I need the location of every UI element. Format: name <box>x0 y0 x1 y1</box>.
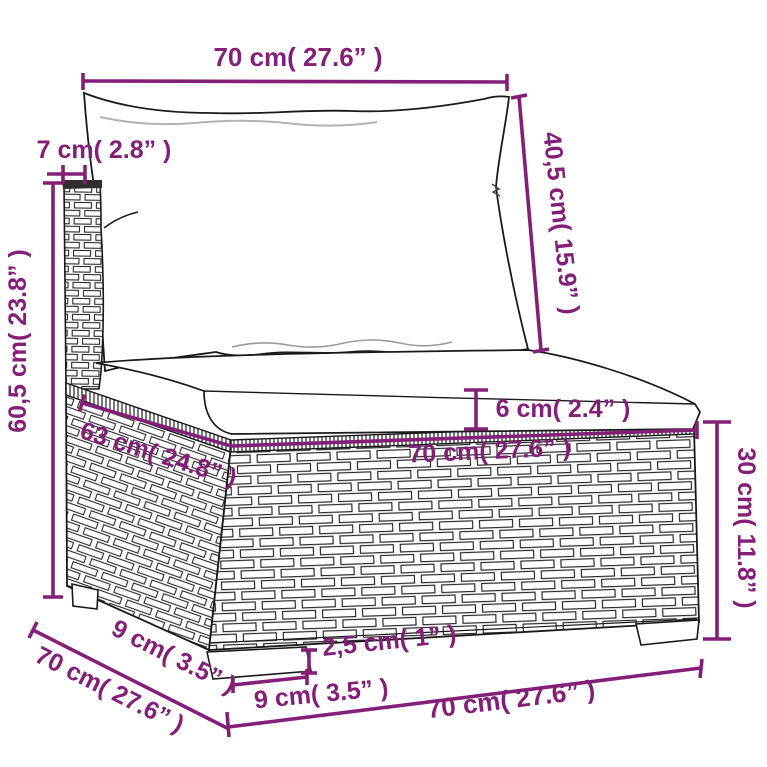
dim-base-height-label: 30 cm( 11.8” ) <box>732 447 760 608</box>
dim-bottom-width-label: 70 cm( 27.6” ) <box>425 674 596 724</box>
backrest-post <box>64 184 103 389</box>
sofa-sketch <box>62 93 700 679</box>
dim-total-height-label: 60,5 cm( 23.8” ) <box>4 249 32 432</box>
dim-total-height: 60,5 cm( 23.8” ) <box>4 183 63 597</box>
dim-back-cushion-height-label: 40,5 cm( 15.9” ) <box>537 130 584 315</box>
back-cushion <box>84 93 528 371</box>
dim-back-thickness-label: 7 cm( 2.8” ) <box>37 136 172 164</box>
dim-base-height: 30 cm( 11.8” ) <box>703 422 760 639</box>
dim-seat-cushion-thickness-label: 6 cm( 2.4” ) <box>496 395 631 423</box>
furniture-dimension-diagram: 70 cm( 27.6” ) 7 cm( 2.8” ) 60,5 cm( 23.… <box>0 0 767 767</box>
dim-back-width: 70 cm( 27.6” ) <box>83 42 507 91</box>
dim-back-width-label: 70 cm( 27.6” ) <box>213 42 382 72</box>
diagram-canvas: 70 cm( 27.6” ) 7 cm( 2.8” ) 60,5 cm( 23.… <box>0 0 767 767</box>
foot-front-right <box>636 620 699 645</box>
dim-back-cushion-height: 40,5 cm( 15.9” ) <box>511 95 584 352</box>
backrest-post-top <box>62 180 102 189</box>
